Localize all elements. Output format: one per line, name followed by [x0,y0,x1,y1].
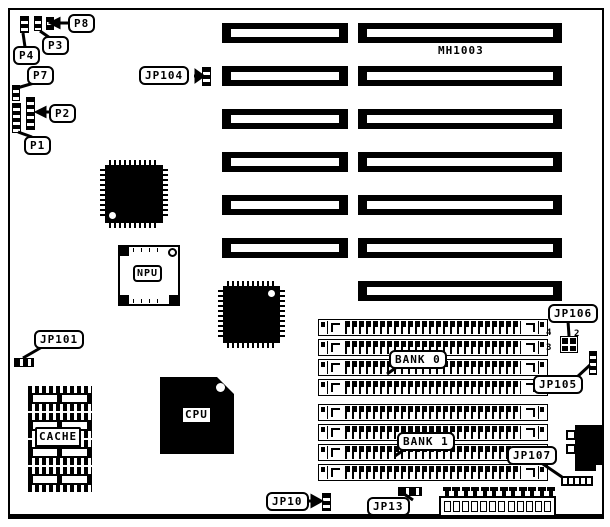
callout-jp105: JP105 [533,375,583,394]
callout-bank0: BANK 0 [389,350,447,369]
callout-jp10: JP10 [266,492,309,511]
jp104-jumper [202,67,211,86]
callout-bank1: BANK 1 [397,432,455,451]
jp107-jumper [561,476,593,486]
callout-p7: P7 [27,66,54,85]
cpu-chip: CPU [160,377,234,454]
callout-jp106: JP106 [548,304,598,323]
board-part-number: MH1003 [438,44,484,57]
jp101-jumper [14,358,34,367]
jp106-pin3-label: 3 [546,343,551,353]
isa-slot [222,109,348,129]
jp10-jumper [322,493,331,511]
npu-socket: NPU [118,245,180,306]
callout-jp101: JP101 [34,330,84,349]
cache-chip [28,386,92,411]
simm-socket [318,404,548,421]
p7-connector [12,85,20,101]
isa-slot [222,152,348,172]
cpu-label: CPU [182,407,211,423]
isa-slot [358,109,562,129]
connector-clip [566,444,576,454]
pin1-marker-icon [216,383,225,392]
pin1-marker-icon [168,248,177,257]
qfp-chip-1 [100,160,168,228]
callout-p3: P3 [42,36,69,55]
qfp-chip-2 [218,281,285,348]
jp106-pin4-label: 4 [546,328,551,338]
p1-connector [12,103,21,133]
cache-label: CACHE [35,427,81,447]
isa-slot [222,238,348,258]
callout-jp13: JP13 [367,497,410,516]
isa-slot [358,23,562,43]
simm-socket [318,319,548,336]
p3-connector [34,16,42,31]
callout-p8: P8 [68,14,95,33]
callout-p2: P2 [49,104,76,123]
isa-slot [358,238,562,258]
simm-socket [318,379,548,396]
jp105-jumper [589,351,597,375]
isa-slot [222,195,348,215]
jp13-jumper [398,487,422,496]
callout-jp107: JP107 [507,446,557,465]
cache-chip [28,467,92,492]
motherboard-diagram: MH1003 CACHE NPU CPU [0,0,610,527]
npu-label: NPU [133,265,162,282]
p4-connector [20,16,29,33]
p8-connector [46,17,54,30]
isa-slot [358,281,562,301]
jp106-pin2-label: 2 [574,329,579,339]
isa-slot [358,152,562,172]
simm-socket [318,464,548,481]
connector-clip [566,430,576,440]
callout-p1: P1 [24,136,51,155]
power-connector [439,496,556,517]
callout-jp104: JP104 [139,66,189,85]
isa-slot [358,195,562,215]
isa-slot [222,66,348,86]
keyboard-connector [575,425,604,471]
isa-slot [358,66,562,86]
p2-connector [26,97,35,130]
isa-slot [222,23,348,43]
power-connector-pins [443,487,555,496]
callout-p4: P4 [13,46,40,65]
